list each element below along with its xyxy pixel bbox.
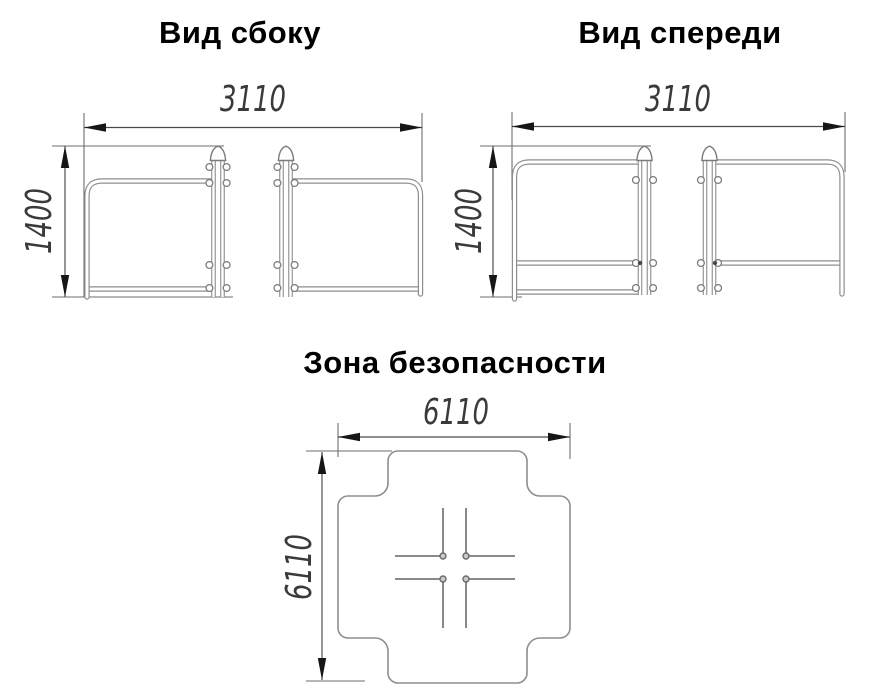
bar-joint-dot: [638, 261, 642, 265]
side-height-dimension-label: 1400: [19, 188, 60, 254]
anchor-dot: [440, 553, 446, 559]
zone-width-dimension-label: 6110: [423, 392, 489, 433]
technical-drawing: Вид сбоку 3110 1400 Вид спереди: [0, 0, 882, 700]
front-view-title: Вид спереди: [578, 15, 781, 50]
bar-joint-dot: [713, 261, 717, 265]
front-height-dimension-label: 1400: [449, 188, 490, 254]
anchor-dot: [463, 553, 469, 559]
front-width-dimension-label: 3110: [645, 79, 711, 120]
side-width-dimension-label: 3110: [220, 79, 286, 120]
safety-zone-title: Зона безопасности: [303, 345, 606, 380]
anchor-dot: [463, 576, 469, 582]
zone-height-dimension-label: 6110: [279, 534, 320, 600]
anchor-dot: [440, 576, 446, 582]
side-view-title: Вид сбоку: [159, 15, 321, 50]
technical-drawing-page: Вид сбоку 3110 1400 Вид спереди: [0, 0, 882, 700]
